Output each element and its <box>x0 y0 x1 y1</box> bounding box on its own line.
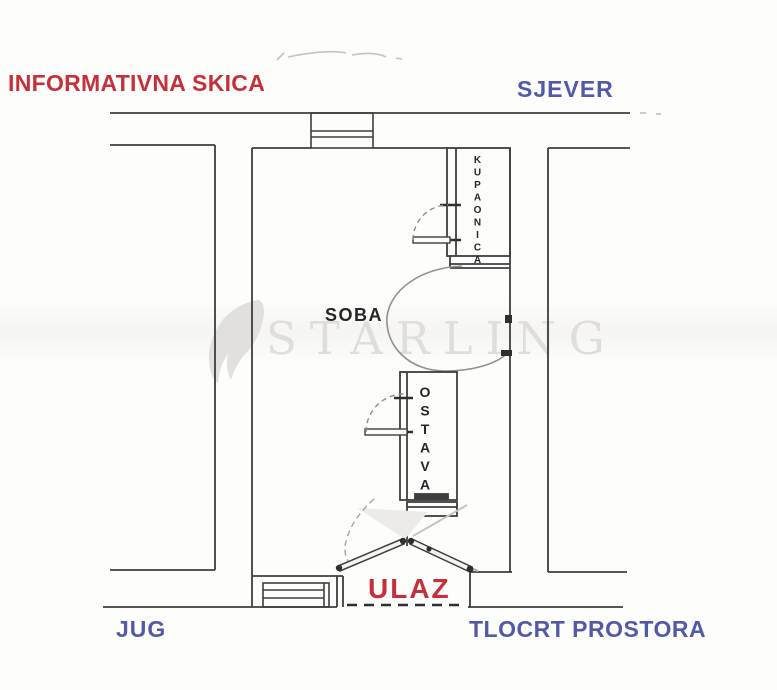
floor-plan-scan: STARLING <box>0 0 777 690</box>
soba-right-door-arc <box>387 266 512 371</box>
door-jamb-stub-top <box>505 315 512 323</box>
top-window <box>311 113 373 148</box>
entrance-door-leaf-left <box>338 539 404 571</box>
left-neighbor-walls <box>110 145 215 570</box>
door-jamb-stub-bottom <box>501 350 512 356</box>
door-ghost-line <box>413 505 467 536</box>
page-title: INFORMATIVNA SKICA <box>8 70 265 97</box>
compass-north-label: SJEVER <box>517 76 614 103</box>
bathroom-door <box>413 205 461 243</box>
bottom-window <box>263 583 329 607</box>
watermark-bird-icon <box>209 300 264 383</box>
right-neighbor-walls <box>548 148 630 572</box>
entrance-door-leaf-right <box>410 539 472 572</box>
room-label-soba: SOBA <box>325 305 383 326</box>
door-hinge-blobs <box>336 538 474 573</box>
room-label-kupaonica: KUPAONICA <box>472 155 483 268</box>
compass-south-label: JUG <box>116 616 166 643</box>
room-label-ostava: OSTAVA <box>417 384 433 495</box>
entrance-label: ULAZ <box>368 573 451 605</box>
storage-door <box>365 394 413 435</box>
plan-caption: TLOCRT PROSTORA <box>469 616 706 643</box>
